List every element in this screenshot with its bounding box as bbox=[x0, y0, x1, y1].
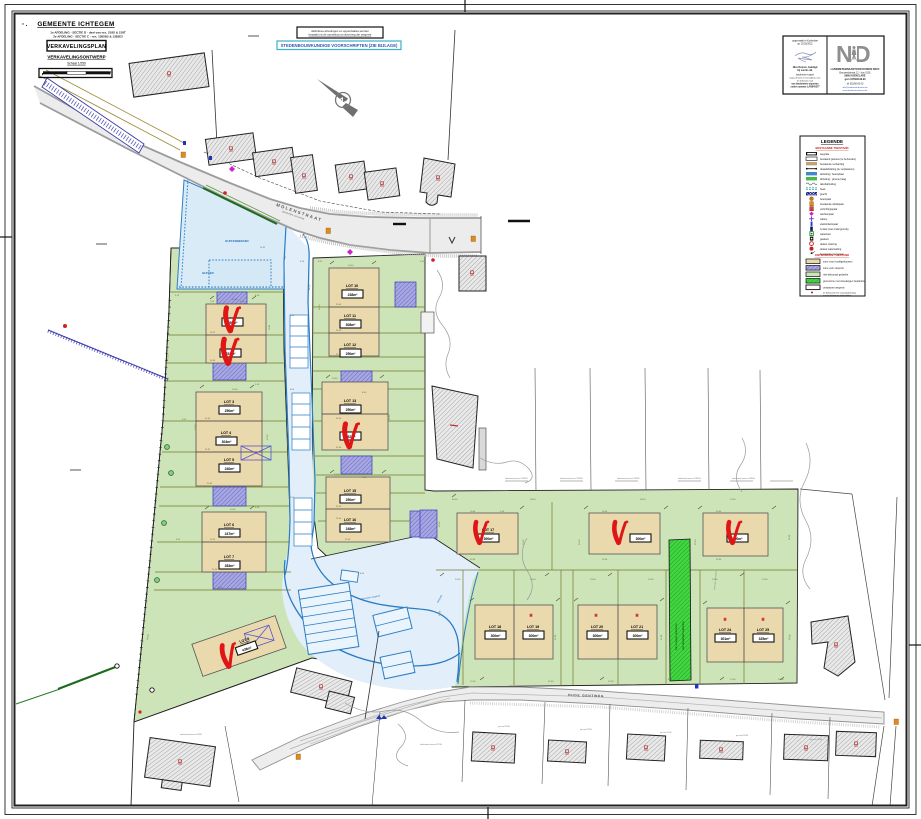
svg-text:24.00: 24.00 bbox=[336, 354, 342, 356]
svg-text:wegzate: wegzate bbox=[820, 153, 830, 156]
svg-text:LOT 12: LOT 12 bbox=[344, 343, 356, 347]
svg-text:14.32: 14.32 bbox=[260, 247, 266, 249]
svg-text:LOT 4: LOT 4 bbox=[221, 431, 231, 435]
svg-text:aan te leggen groenzone: aan te leggen groenzone bbox=[675, 623, 678, 650]
svg-text:300m²: 300m² bbox=[491, 634, 502, 638]
svg-text:ontworpen wegenis: ontworpen wegenis bbox=[823, 287, 845, 290]
svg-text:13.00: 13.00 bbox=[648, 579, 654, 581]
svg-text:250m²: 250m² bbox=[346, 498, 357, 502]
svg-text:301m²: 301m² bbox=[721, 637, 732, 641]
svg-text:10.00: 10.00 bbox=[470, 511, 476, 513]
svg-text:de federale raad: de federale raad bbox=[797, 80, 814, 83]
svg-text:13.00: 13.00 bbox=[602, 559, 608, 561]
svg-text:300m²: 300m² bbox=[636, 537, 647, 541]
svg-text:12.50: 12.50 bbox=[267, 434, 269, 440]
svg-text:250m²: 250m² bbox=[225, 409, 236, 413]
svg-text:*: * bbox=[594, 612, 598, 622]
svg-text:12.00: 12.00 bbox=[389, 414, 391, 420]
svg-text:24.87: 24.87 bbox=[205, 449, 211, 451]
svg-text:24.00: 24.00 bbox=[336, 518, 342, 520]
svg-text:perceel 216D: perceel 216D bbox=[580, 729, 592, 731]
svg-text:LOT 15: LOT 15 bbox=[344, 489, 356, 493]
svg-text:deksel riolering: deksel riolering bbox=[820, 243, 837, 246]
svg-text:LOT 10: LOT 10 bbox=[346, 284, 358, 288]
svg-text:kadastraal perceel 217A: kadastraal perceel 217A bbox=[420, 743, 442, 746]
svg-text:kadastraal perceel 1385F: kadastraal perceel 1385F bbox=[617, 477, 640, 480]
svg-text:kadastraal perceel 1385E: kadastraal perceel 1385E bbox=[560, 477, 583, 480]
svg-text:info@landmeterdumon.be: info@landmeterdumon.be bbox=[842, 86, 868, 89]
svg-text:13.00: 13.00 bbox=[590, 579, 596, 581]
svg-text:LOT 13: LOT 13 bbox=[344, 399, 356, 403]
svg-text:tel 051/58.00.00: tel 051/58.00.00 bbox=[847, 83, 864, 86]
svg-text:STEDENBOUWKUNDIGE VOORSCHRIFTE: STEDENBOUWKUNDIGE VOORSCHRIFTEN (ZIE BIJ… bbox=[281, 43, 398, 48]
svg-text:LOT 11: LOT 11 bbox=[344, 314, 356, 318]
svg-text:van landmeters-experten: van landmeters-experten bbox=[791, 83, 819, 86]
svg-text:LEGENDE: LEGENDE bbox=[821, 139, 843, 144]
svg-text:24.00: 24.00 bbox=[336, 330, 342, 332]
svg-text:afsluiting / betonplaat: afsluiting / betonplaat bbox=[820, 173, 844, 176]
svg-text:24.00: 24.00 bbox=[336, 447, 342, 449]
svg-text:24.00: 24.00 bbox=[336, 418, 342, 420]
svg-text:groenzone met streekeigen bepl: groenzone met streekeigen beplanting bbox=[823, 280, 866, 283]
svg-text:LOT 5: LOT 5 bbox=[224, 458, 234, 462]
svg-text:ONTWORPEN TOESTAND: ONTWORPEN TOESTAND bbox=[815, 253, 849, 257]
svg-text:25.00: 25.00 bbox=[579, 539, 581, 545]
svg-text:13.00: 13.00 bbox=[730, 499, 736, 501]
svg-text:24.00: 24.00 bbox=[232, 299, 238, 301]
svg-text:24.00: 24.00 bbox=[332, 378, 338, 380]
svg-text:afsluiting : groene haag: afsluiting : groene haag bbox=[820, 178, 847, 181]
svg-text:300m²: 300m² bbox=[593, 634, 604, 638]
svg-text:25.00: 25.00 bbox=[695, 539, 697, 545]
svg-text:VERKAVELINGSPLAN: VERKAVELINGSPLAN bbox=[47, 44, 106, 50]
svg-text:landmeter-expert: landmeter-expert bbox=[796, 74, 814, 77]
svg-text:tv-kast (niet ondergronds): tv-kast (niet ondergronds) bbox=[820, 228, 849, 231]
svg-text:talud/afsluiting: talud/afsluiting bbox=[820, 183, 837, 186]
svg-text:*: * bbox=[529, 612, 533, 622]
svg-text:24.00: 24.00 bbox=[336, 506, 342, 508]
svg-text:240m²: 240m² bbox=[225, 467, 236, 471]
svg-text:bepaald na de opmeting na uitv: bepaald na de opmeting na uitvoering der… bbox=[309, 33, 372, 37]
svg-text:13.00: 13.00 bbox=[716, 559, 722, 561]
svg-text:10.61: 10.61 bbox=[269, 324, 271, 330]
svg-text:perceel 216B: perceel 216B bbox=[736, 735, 748, 737]
svg-text:24.43: 24.43 bbox=[210, 360, 216, 362]
svg-text:draadafsluiting (te verplaatse: draadafsluiting (te verplaatsen) bbox=[820, 168, 854, 171]
svg-text:bestaand gebouw (te behouden): bestaand gebouw (te behouden) bbox=[820, 158, 856, 161]
svg-text:LOT 20: LOT 20 bbox=[591, 625, 603, 629]
svg-text:304m²: 304m² bbox=[222, 440, 233, 444]
svg-text:300m²: 300m² bbox=[633, 634, 644, 638]
svg-text:308m²: 308m² bbox=[346, 323, 357, 327]
svg-text:kadastraal perceel 1385H: kadastraal perceel 1385H bbox=[732, 477, 755, 480]
svg-text:12.00: 12.00 bbox=[470, 681, 476, 683]
svg-text:zone voor hoofdgebouwen: zone voor hoofdgebouwen bbox=[823, 261, 853, 264]
svg-text:250m²: 250m² bbox=[346, 408, 357, 412]
svg-text:12.00: 12.00 bbox=[608, 681, 614, 683]
svg-text:250m²: 250m² bbox=[346, 352, 357, 356]
svg-text:ingeschreven in het tableau va: ingeschreven in het tableau van bbox=[790, 77, 822, 80]
svg-text:LOT 16: LOT 16 bbox=[344, 518, 356, 522]
svg-text:VERKAVELINGSONTWERP: VERKAVELINGSONTWERP bbox=[47, 55, 105, 60]
svg-text:*: * bbox=[761, 616, 765, 626]
svg-text:betonpaal: betonpaal bbox=[820, 198, 831, 201]
svg-text:BUFFERBEKKEN: BUFFERBEKKEN bbox=[225, 239, 248, 243]
svg-text:25.09: 25.09 bbox=[207, 483, 213, 485]
svg-text:LOT 19: LOT 19 bbox=[527, 625, 539, 629]
svg-text:bestaande afsluitpaal: bestaande afsluitpaal bbox=[820, 203, 844, 206]
svg-text:op 12/02/2021: op 12/02/2021 bbox=[797, 43, 813, 46]
svg-text:24.05: 24.05 bbox=[230, 509, 236, 511]
svg-text:BUFFER: BUFFER bbox=[202, 271, 213, 275]
svg-text:beek: beek bbox=[820, 188, 826, 191]
svg-text:12.00: 12.00 bbox=[345, 539, 351, 541]
svg-text:12.00: 12.00 bbox=[195, 424, 197, 430]
svg-text:*: * bbox=[635, 612, 639, 622]
svg-text:238m²: 238m² bbox=[348, 293, 359, 297]
svg-text:LOT 25: LOT 25 bbox=[757, 628, 769, 632]
svg-text:10.00: 10.00 bbox=[716, 511, 722, 513]
svg-text:perceel 216E: perceel 216E bbox=[498, 726, 510, 728]
svg-text:lot bebouwd met woning/afsluit: lot bebouwd met woning/afsluiting bbox=[823, 291, 857, 294]
svg-text:BESTAANDE TOESTAND: BESTAANDE TOESTAND bbox=[815, 146, 848, 150]
svg-text:24.00: 24.00 bbox=[334, 474, 340, 476]
svg-text:325m²: 325m² bbox=[759, 637, 770, 641]
svg-text:12.50: 12.50 bbox=[778, 679, 784, 681]
svg-text:kadastraal perceel 1385G: kadastraal perceel 1385G bbox=[678, 477, 701, 480]
svg-text:28.50: 28.50 bbox=[530, 499, 536, 501]
svg-text:GEMEENTE ICHTEGEM: GEMEENTE ICHTEGEM bbox=[37, 21, 114, 28]
svg-text:13.00: 13.00 bbox=[470, 559, 476, 561]
svg-text:248m²: 248m² bbox=[346, 527, 357, 531]
svg-text:25.53: 25.53 bbox=[212, 569, 218, 571]
svg-text:300m²: 300m² bbox=[484, 537, 495, 541]
svg-text:11.50: 11.50 bbox=[319, 304, 321, 310]
svg-text:14.00: 14.00 bbox=[348, 265, 354, 267]
svg-text:gaskast: gaskast bbox=[820, 238, 829, 241]
svg-text:niet-bebouwd gedeelte: niet-bebouwd gedeelte bbox=[823, 274, 849, 277]
svg-text:LOT 6: LOT 6 bbox=[224, 523, 234, 527]
svg-text:13.00: 13.00 bbox=[762, 579, 768, 581]
svg-text:28.50: 28.50 bbox=[640, 499, 646, 501]
svg-text:kadastraal perceel 1385D: kadastraal perceel 1385D bbox=[505, 477, 528, 480]
svg-text:N: N bbox=[836, 41, 853, 67]
svg-text:telefoonpaal: telefoonpaal bbox=[820, 213, 834, 216]
svg-text:zone voor carports: zone voor carports bbox=[823, 267, 844, 270]
svg-text:Schaal 1/250: Schaal 1/250 bbox=[67, 62, 86, 66]
svg-text:24.00: 24.00 bbox=[232, 389, 238, 391]
svg-text:elektriciteitspaal: elektriciteitspaal bbox=[820, 223, 838, 226]
svg-text:12.00: 12.00 bbox=[661, 634, 663, 640]
svg-text:cabine: cabine bbox=[820, 218, 828, 221]
svg-text:247m²: 247m² bbox=[225, 532, 236, 536]
svg-text:LOT 24: LOT 24 bbox=[719, 628, 731, 632]
svg-text:40.00: 40.00 bbox=[452, 499, 458, 501]
svg-text:gsm 0478/99.99.99: gsm 0478/99.99.99 bbox=[845, 78, 867, 81]
svg-text:perceel 216C: perceel 216C bbox=[660, 732, 672, 734]
svg-text:gracht: gracht bbox=[820, 193, 827, 196]
svg-text:deksel waterleiding: deksel waterleiding bbox=[820, 248, 842, 251]
svg-text:LOT 18: LOT 18 bbox=[489, 625, 501, 629]
svg-text:LOT 3: LOT 3 bbox=[224, 400, 234, 404]
svg-text:12.00: 12.00 bbox=[555, 634, 557, 640]
svg-text:25.00: 25.00 bbox=[439, 521, 441, 527]
svg-text:LOT 7: LOT 7 bbox=[224, 555, 234, 559]
svg-text:waterkast: waterkast bbox=[820, 233, 831, 236]
svg-text:aan te leggen na verkaveling: aan te leggen na verkaveling bbox=[823, 294, 852, 297]
svg-text:onder nummer LAN040377: onder nummer LAN040377 bbox=[790, 86, 820, 89]
svg-text:2e AFDELING - SECTIE C - nrs.: 2e AFDELING - SECTIE C - nrs. 1385B2 & 1… bbox=[53, 35, 123, 39]
svg-text:kadastraal perceel 218B: kadastraal perceel 218B bbox=[180, 733, 202, 736]
svg-text:met streekeigen beplanting: met streekeigen beplanting bbox=[682, 621, 685, 650]
svg-text:46.18: 46.18 bbox=[309, 284, 311, 290]
svg-text:www.landmeterdumon.be: www.landmeterdumon.be bbox=[843, 89, 868, 92]
svg-text:12.00: 12.00 bbox=[730, 679, 736, 681]
svg-text:10.00: 10.00 bbox=[602, 511, 608, 513]
svg-text:24.65: 24.65 bbox=[205, 418, 211, 420]
svg-text:12.00: 12.00 bbox=[548, 681, 554, 683]
svg-text:24.00: 24.00 bbox=[336, 304, 342, 306]
svg-text:13.00: 13.00 bbox=[455, 579, 461, 581]
svg-text:25.31: 25.31 bbox=[210, 539, 216, 541]
svg-text:LANDMETERSKANTOOR DUMON NICO: LANDMETERSKANTOOR DUMON NICO bbox=[831, 67, 880, 71]
svg-text:perceel 216A: perceel 216A bbox=[810, 738, 822, 741]
svg-text:*: * bbox=[723, 616, 727, 626]
svg-text:300m²: 300m² bbox=[529, 634, 540, 638]
svg-text:verlichtingspaal: verlichtingspaal bbox=[820, 208, 838, 211]
svg-text:bestaande verharding: bestaande verharding bbox=[820, 163, 845, 166]
svg-text:LOT 21: LOT 21 bbox=[631, 625, 643, 629]
svg-text:24.21: 24.21 bbox=[210, 332, 216, 334]
svg-text:283m²: 283m² bbox=[225, 564, 236, 568]
svg-text:13.50: 13.50 bbox=[789, 534, 791, 540]
svg-text:bij vonnis dd.: bij vonnis dd. bbox=[797, 69, 813, 72]
